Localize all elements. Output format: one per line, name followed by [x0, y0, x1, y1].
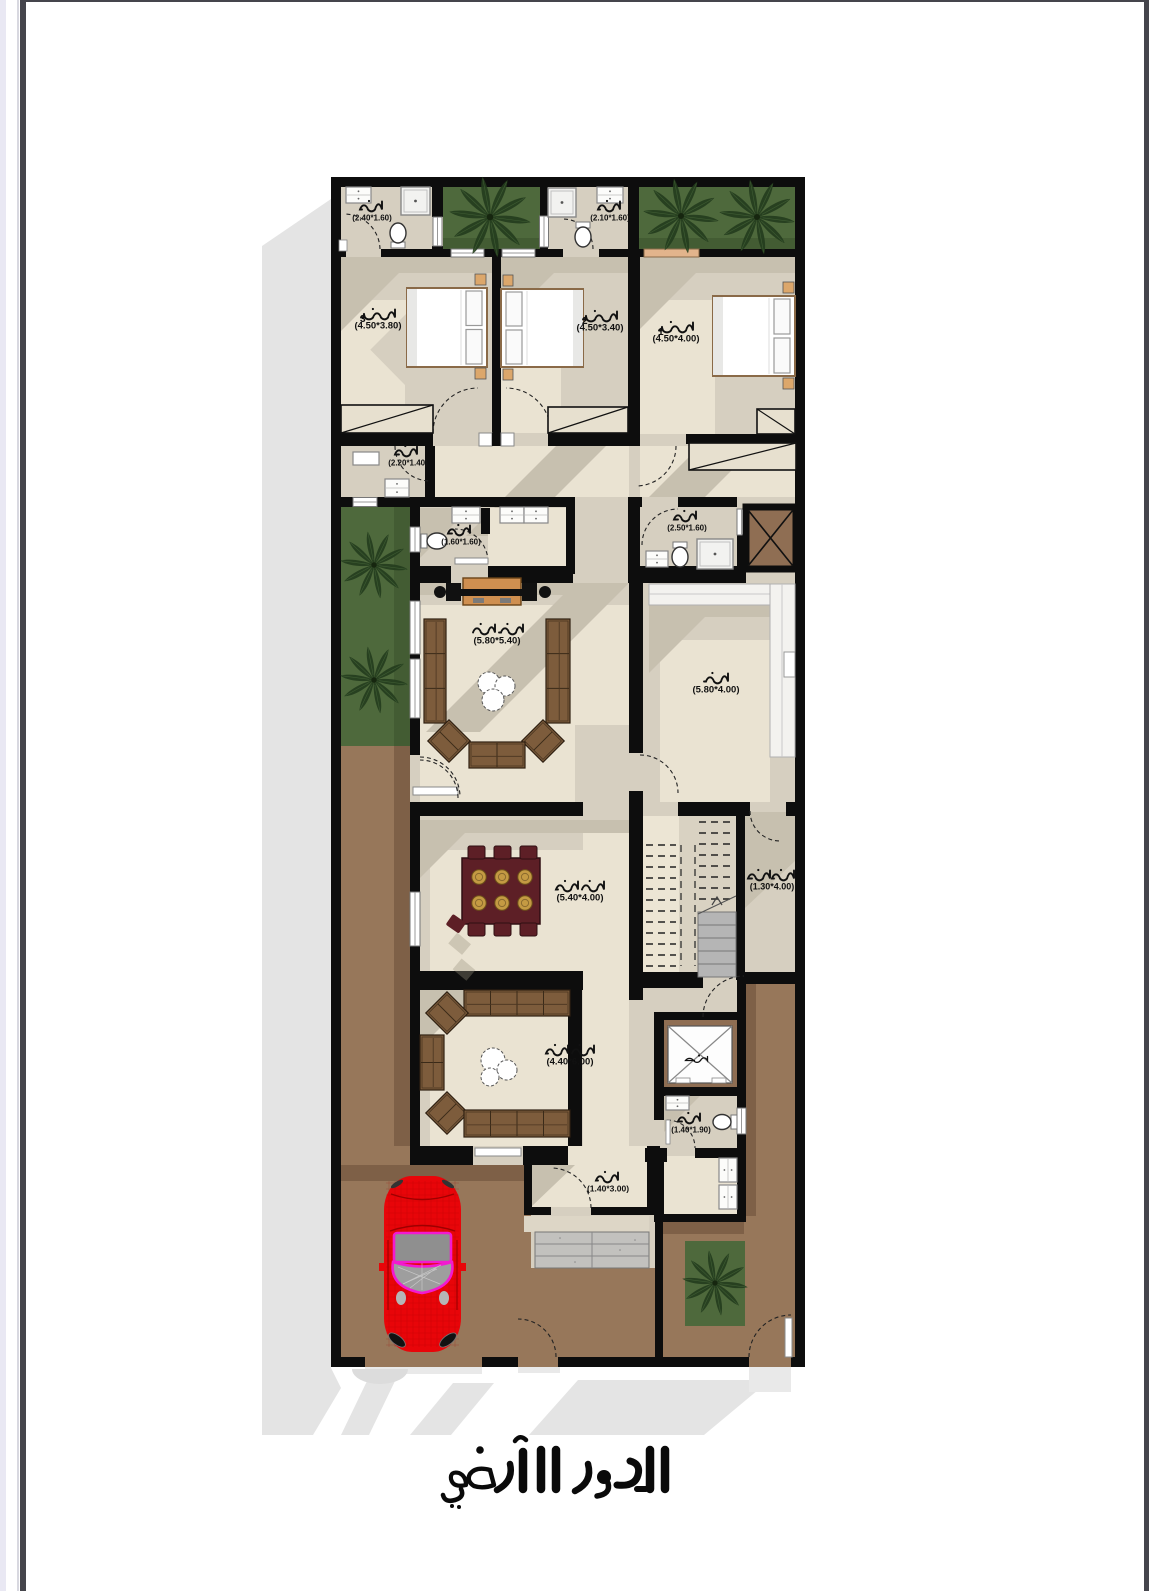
svg-text:(2.50*1.60): (2.50*1.60)	[667, 524, 707, 533]
svg-text:(1.30*4.00): (1.30*4.00)	[750, 882, 795, 892]
svg-text:(5.40*4.00): (5.40*4.00)	[556, 893, 603, 904]
svg-text:(5.80*4.00): (5.80*4.00)	[692, 685, 739, 696]
svg-text:(2.40*1.60): (2.40*1.60)	[352, 214, 392, 223]
svg-text:(1.40*3.00): (1.40*3.00)	[587, 1184, 629, 1194]
svg-text:(4.40*6.00): (4.40*6.00)	[546, 1057, 593, 1068]
svg-text:(2.20*1.40): (2.20*1.40)	[388, 459, 428, 468]
svg-text:1: 1	[658, 327, 664, 338]
svg-text:3: 3	[360, 314, 366, 325]
svg-text:(2.10*1.60): (2.10*1.60)	[590, 214, 630, 223]
svg-text:2: 2	[582, 316, 588, 327]
svg-text:(1.40*1.90): (1.40*1.90)	[671, 1126, 711, 1135]
svg-text:(5.80*5.40): (5.80*5.40)	[473, 636, 520, 647]
svg-text:(1.60*1.60): (1.60*1.60)	[441, 538, 481, 547]
